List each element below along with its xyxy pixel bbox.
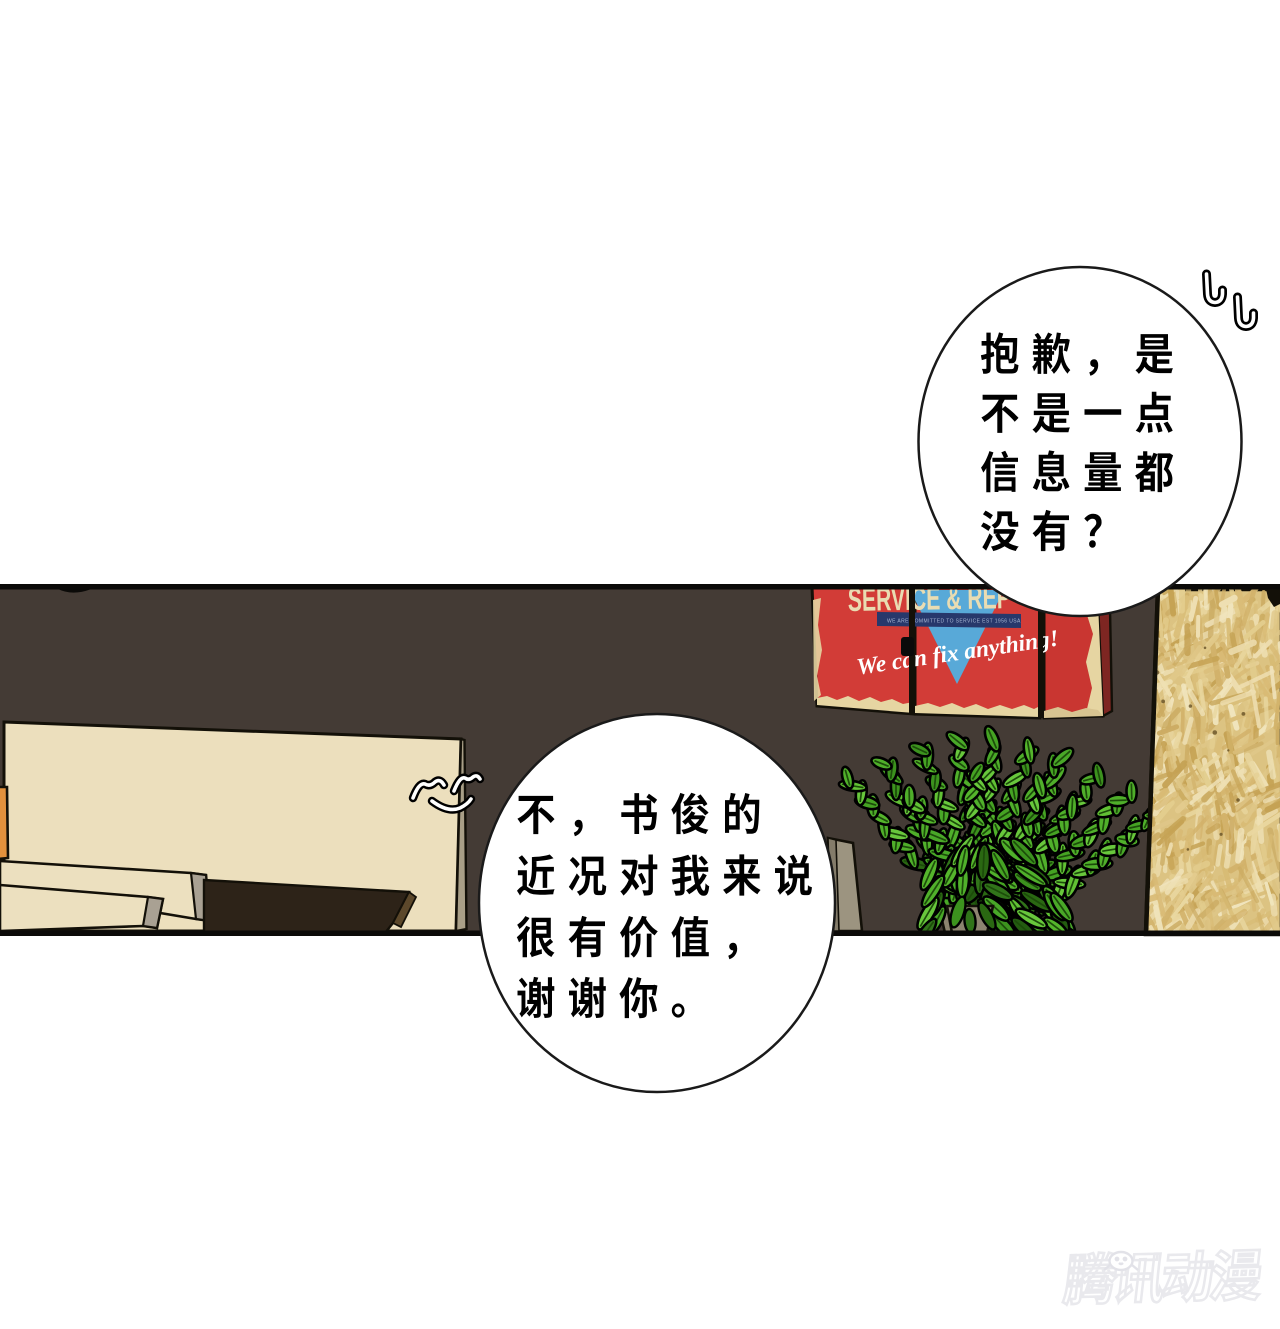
svg-text:WE ARE COMMITTED TO SERVICE ES: WE ARE COMMITTED TO SERVICE EST 1956 USA (887, 619, 1021, 625)
